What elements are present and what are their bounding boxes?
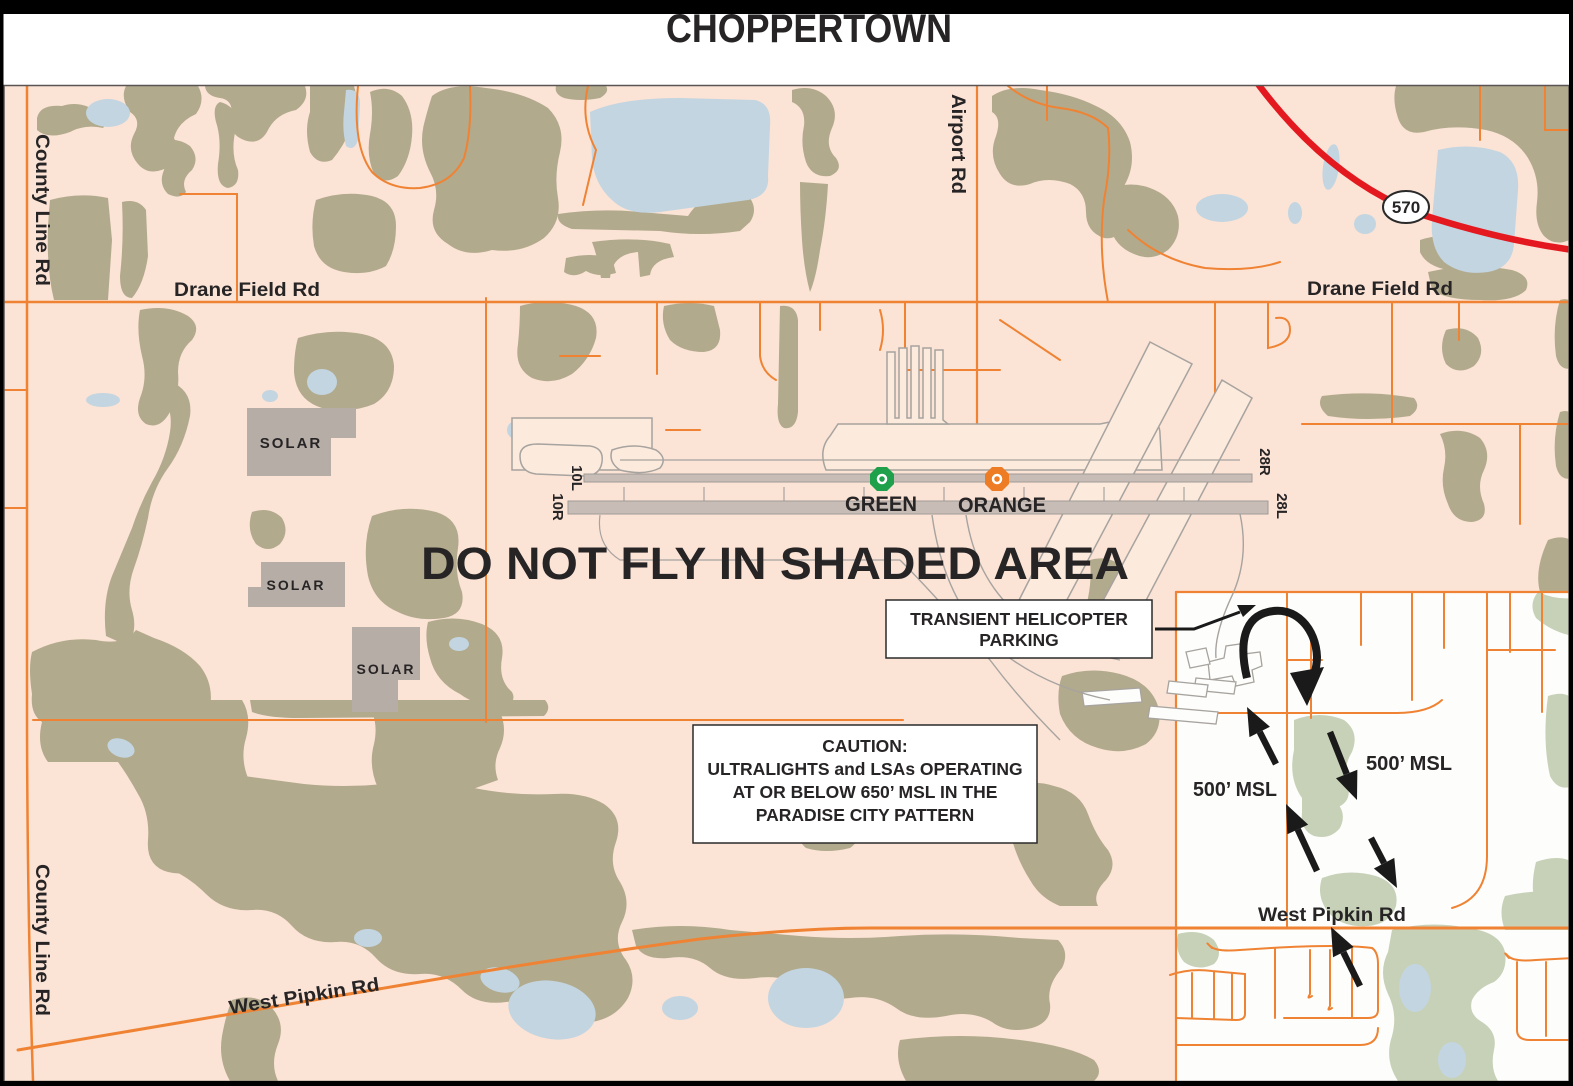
svg-text:AT OR BELOW 650’ MSL IN THE: AT OR BELOW 650’ MSL IN THE — [733, 782, 998, 802]
svg-text:CAUTION:: CAUTION: — [822, 736, 908, 756]
svg-text:500’ MSL: 500’ MSL — [1193, 779, 1277, 801]
svg-text:GREEN: GREEN — [845, 493, 917, 516]
svg-text:500’ MSL: 500’ MSL — [1366, 753, 1452, 775]
svg-text:Drane Field Rd: Drane Field Rd — [174, 280, 320, 301]
svg-text:Airport Rd: Airport Rd — [947, 94, 968, 194]
svg-text:DO NOT FLY IN SHADED AREA: DO NOT FLY IN SHADED AREA — [421, 538, 1129, 589]
svg-text:ULTRALIGHTS and LSAs OPERATING: ULTRALIGHTS and LSAs OPERATING — [707, 759, 1022, 779]
svg-text:ORANGE: ORANGE — [958, 494, 1046, 517]
svg-text:CHOPPERTOWN: CHOPPERTOWN — [666, 7, 952, 51]
svg-text:28L: 28L — [1273, 493, 1290, 519]
svg-text:TRANSIENT HELICOPTER: TRANSIENT HELICOPTER — [910, 609, 1128, 629]
svg-text:SOLAR: SOLAR — [267, 577, 326, 593]
svg-text:570: 570 — [1392, 198, 1420, 217]
svg-text:County Line Rd: County Line Rd — [31, 864, 52, 1016]
svg-text:SOLAR: SOLAR — [260, 435, 323, 452]
svg-text:10R: 10R — [549, 493, 566, 521]
svg-text:28R: 28R — [1256, 448, 1273, 476]
svg-text:County Line Rd: County Line Rd — [31, 134, 52, 286]
svg-text:Drane Field Rd: Drane Field Rd — [1307, 279, 1453, 300]
svg-text:SOLAR: SOLAR — [357, 661, 416, 677]
svg-text:PARKING: PARKING — [979, 630, 1058, 650]
svg-text:West Pipkin Rd: West Pipkin Rd — [1258, 905, 1406, 926]
svg-text:10L: 10L — [568, 465, 585, 491]
svg-text:PARADISE CITY PATTERN: PARADISE CITY PATTERN — [756, 805, 974, 825]
